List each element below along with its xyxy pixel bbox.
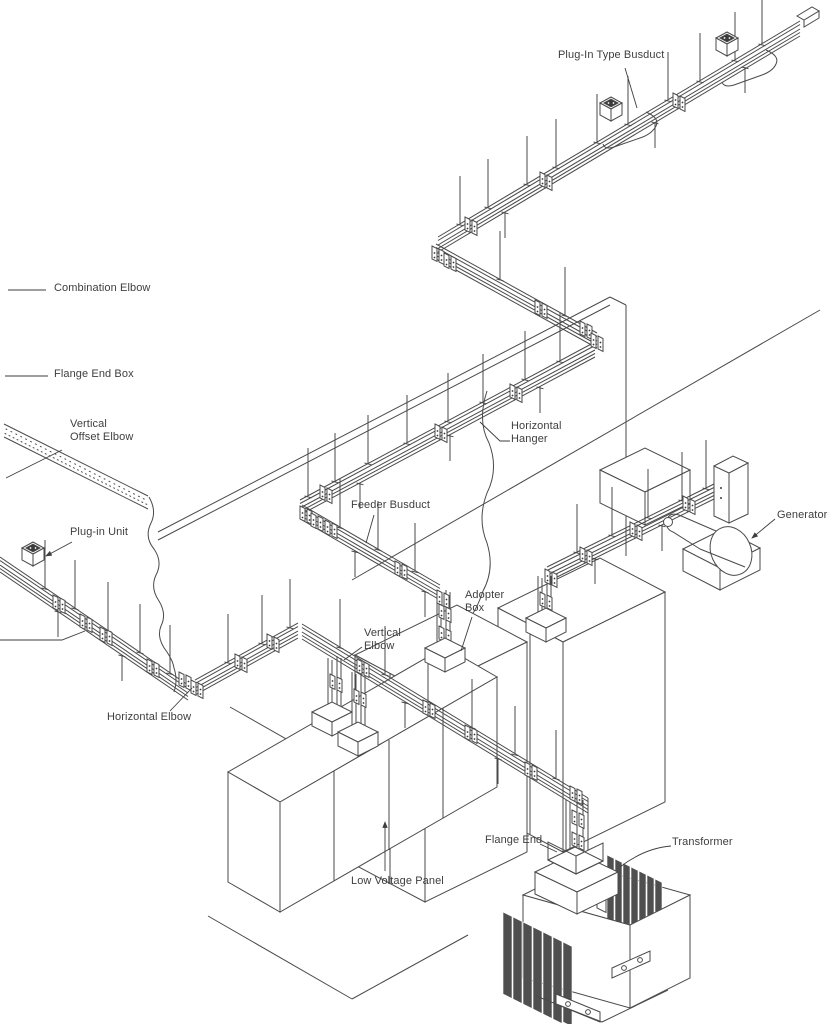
generator-cube (600, 448, 690, 525)
leader-generator (752, 519, 775, 538)
leader-plug-in-unit (46, 542, 72, 556)
leader-vertical-offset-elbow (6, 450, 62, 478)
busduct-run-wall-top (436, 244, 597, 348)
leader-feeder-busduct (366, 515, 374, 543)
leader-plug-in-type-busduct (625, 68, 637, 108)
label-plug-in-type-busduct: Plug-In Type Busduct (558, 49, 664, 62)
busduct-installation-diagram: Plug-In Type Busduct Combination Elbow F… (0, 0, 830, 1024)
generator-duct-tower (714, 456, 748, 523)
label-transformer: Transformer (672, 836, 733, 849)
leader-transformer (620, 846, 671, 867)
transformer (503, 842, 690, 1024)
label-flange-end: Flange End (485, 834, 542, 847)
plug-in-unit-box (22, 542, 44, 566)
plug-in-unit-box (600, 97, 622, 121)
label-adopter-box: Adopter Box (465, 589, 504, 615)
label-plug-in-unit: Plug-in Unit (70, 526, 128, 539)
label-vertical-offset-elbow: Vertical Offset Elbow (70, 418, 133, 444)
label-combination-elbow: Combination Elbow (54, 282, 150, 295)
label-vertical-elbow: Vertical Elbow (364, 627, 401, 653)
label-horizontal-hanger: Horizontal Hanger (511, 420, 562, 446)
label-low-voltage-panel: Low Voltage Panel (351, 875, 444, 888)
end-cap (797, 7, 819, 27)
label-flange-end-box: Flange End Box (54, 368, 134, 381)
label-horizontal-elbow: Horizontal Elbow (107, 711, 191, 724)
conduit-hook (722, 50, 777, 86)
label-feeder-busduct: Feeder Busduct (351, 499, 430, 512)
label-generator: Generator (777, 509, 827, 522)
leader-left-edge (0, 631, 85, 640)
